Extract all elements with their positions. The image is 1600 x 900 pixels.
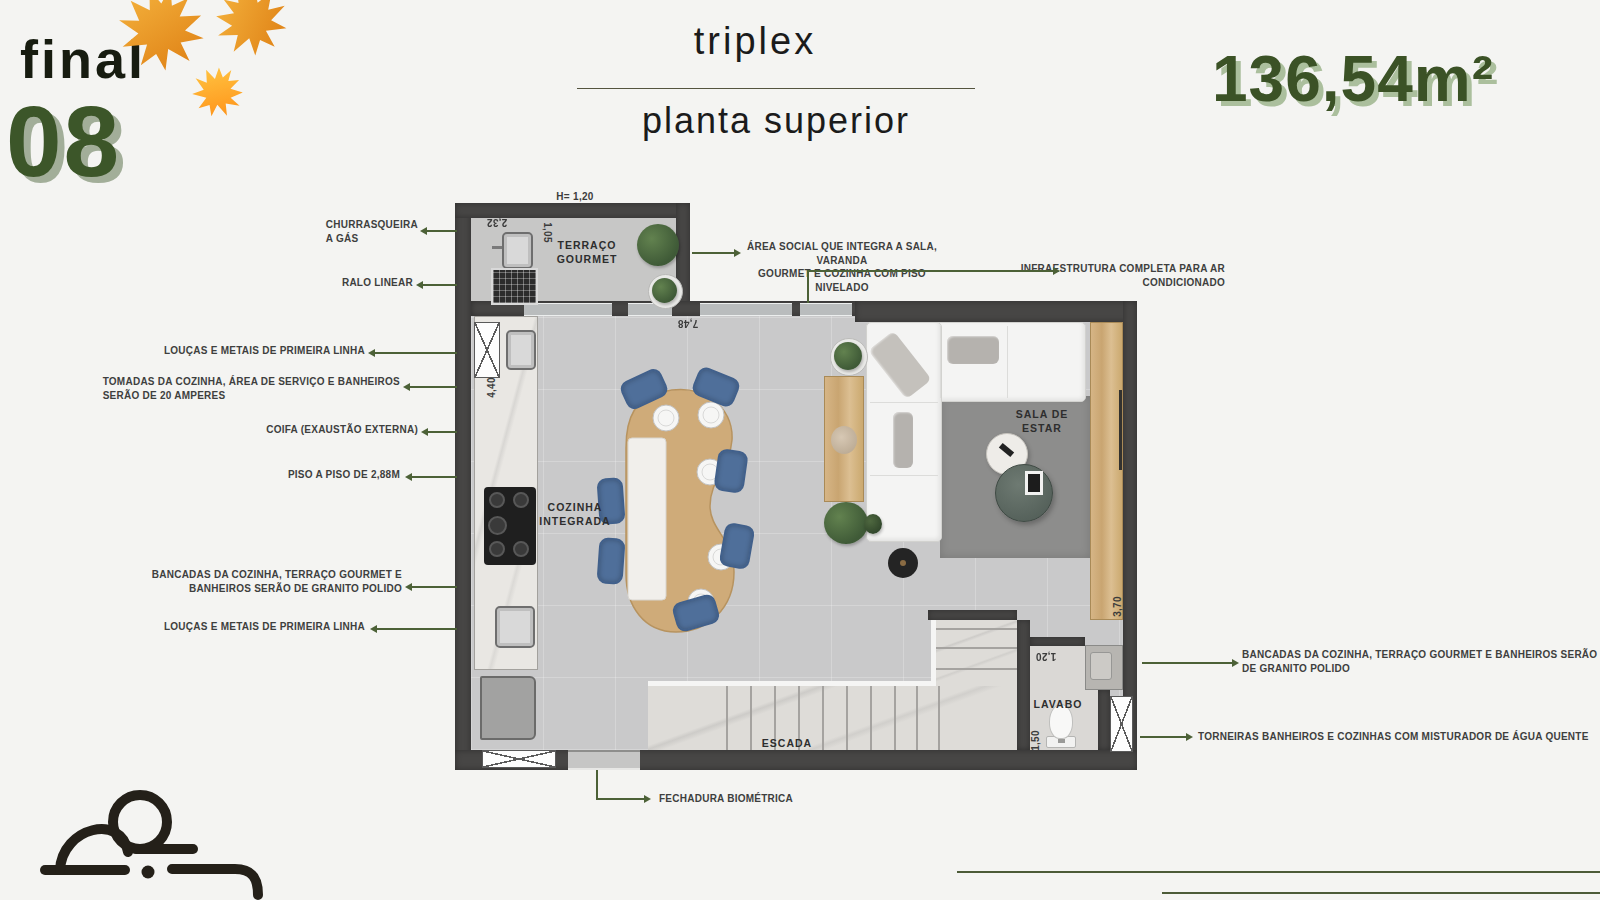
- dim-living-width: 7,48: [668, 318, 708, 329]
- annotation-line: [423, 284, 457, 286]
- room-label-bathroom: LAVABO: [1008, 697, 1108, 711]
- sofa-pillow: [947, 336, 999, 364]
- annotation-bancadas-right: BANCADAS DA COZINHA, TERRAÇO GOURMET E B…: [1242, 648, 1597, 675]
- sliding-door: [800, 303, 852, 316]
- annotation-line: [377, 628, 457, 630]
- arrow-icon: [644, 795, 651, 803]
- lavabo-sink: [1090, 652, 1112, 680]
- arrow-icon: [734, 249, 741, 257]
- annotation-loucas-1: LOUÇAS E METAIS DE PRIMEIRA LINHA: [164, 344, 365, 358]
- stair-tread: [936, 668, 1017, 670]
- page-subtitle: planta superior: [577, 100, 975, 142]
- wall-left: [455, 203, 471, 770]
- annotation-coifa: COIFA (EXAUSTÃO EXTERNA): [266, 423, 418, 437]
- annotation-piso-a-piso: PISO A PISO DE 2,88M: [288, 468, 400, 482]
- wood-panel: [1090, 322, 1123, 620]
- terrace-plant: [637, 224, 679, 266]
- annotation-line: [1140, 736, 1186, 738]
- dried-plant: [831, 426, 857, 454]
- sofa-pillow: [893, 412, 913, 468]
- dim-ceiling-height: H= 1,20: [545, 191, 605, 202]
- potted-plant-leaves: [834, 342, 862, 370]
- floorplan-poster: final 08 triplex planta superior 136,54m…: [0, 0, 1600, 900]
- annotation-line: [412, 586, 457, 588]
- arrow-icon: [1186, 733, 1193, 741]
- dining-chair: [596, 537, 625, 585]
- cooktop-burner: [488, 516, 507, 535]
- annotation-line: [375, 352, 457, 354]
- dim-bathroom-width: 1,20: [1026, 651, 1066, 662]
- annotation-fechadura: FECHADURA BIOMÉTRICA: [659, 792, 793, 806]
- title-divider: [577, 88, 975, 89]
- dim-panel-length: 3,70: [1112, 587, 1123, 627]
- unit-number: 08: [6, 84, 121, 199]
- sofa-seam: [940, 326, 941, 398]
- dim-bathroom-depth: 1,50: [1030, 721, 1041, 761]
- annotation-tomadas: TOMADAS DA COZINHA, ÁREA DE SERVIÇO E BA…: [103, 375, 400, 402]
- stair-tread: [726, 686, 728, 750]
- wall-lavabo-top: [1030, 637, 1085, 646]
- dim-kitchen-length: 4,40: [486, 368, 497, 408]
- stair-tread: [936, 647, 1017, 649]
- dim-terrace-depth: 2,32: [477, 217, 517, 228]
- arrow-icon: [421, 428, 428, 436]
- annotation-area-social: ÁREA SOCIAL QUE INTEGRA A SALA, VARANDA …: [742, 240, 942, 294]
- panel-handle: [1119, 390, 1122, 470]
- wall-stairs-lavabo: [1017, 620, 1030, 750]
- stair-tread: [936, 628, 1017, 630]
- stair-tread: [870, 686, 872, 750]
- annotation-ralo-linear: RALO LINEAR: [342, 276, 413, 290]
- cooktop-burner: [489, 492, 505, 508]
- page-title: triplex: [600, 20, 910, 63]
- annotation-line: [596, 770, 598, 800]
- stair-tread: [916, 686, 918, 750]
- area-value: 136,54m²: [1212, 42, 1494, 116]
- arrow-icon: [420, 227, 427, 235]
- wall-stairs-upper-top: [928, 610, 1017, 620]
- annotation-infraestrutura: INFRAESTRUTURA COMPLETA PARA AR CONDICIO…: [1021, 262, 1225, 289]
- arrow-icon: [403, 383, 410, 391]
- annotation-line: [427, 230, 457, 232]
- kitchen-sink-top: [506, 330, 536, 370]
- terrace-faucet: [492, 246, 502, 249]
- stair-tread: [894, 686, 896, 750]
- small-plant: [864, 514, 882, 534]
- stair-tread: [846, 686, 848, 750]
- sofa-seam: [1007, 326, 1008, 398]
- arrow-icon: [1232, 659, 1239, 667]
- room-label-kitchen: COZINHA INTEGRADA: [515, 500, 635, 528]
- coffee-table-stone: [995, 464, 1053, 522]
- arrow-icon: [416, 281, 423, 289]
- annotation-line: [692, 252, 734, 254]
- brand-logo: [30, 755, 275, 900]
- arrow-icon: [1053, 267, 1060, 275]
- dim-terrace-side: 1,05: [542, 213, 553, 253]
- stairs-edge: [931, 620, 936, 686]
- wall-terrace-top: [455, 203, 690, 218]
- entry-door-opening: [568, 750, 640, 770]
- dining-chair: [713, 448, 749, 494]
- annotation-line: [596, 798, 644, 800]
- terrace-potted-plant-leaves: [652, 278, 677, 303]
- wall-sofa-back: [855, 301, 1137, 322]
- footer-rule: [957, 871, 1600, 873]
- floor-plant: [824, 502, 868, 544]
- sofa-seam: [870, 475, 938, 476]
- annotation-line: [412, 476, 457, 478]
- toilet-button: [1058, 739, 1065, 743]
- refrigerator: [480, 676, 536, 740]
- arrow-icon: [370, 625, 377, 633]
- sofa-seam: [870, 402, 938, 403]
- annotation-line: [807, 270, 1053, 272]
- stairs-upper-flight: [936, 620, 1017, 686]
- annotation-line: [1142, 662, 1232, 664]
- annotation-torneiras: TORNEIRAS BANHEIROS E COZINHAS COM MISTU…: [1198, 730, 1589, 744]
- terrace-sink: [502, 232, 533, 269]
- stairs-edge: [648, 681, 935, 686]
- gas-grill: [491, 268, 538, 305]
- coffee-table-book: [1028, 474, 1040, 492]
- annotation-bancadas-left: BANCADAS DA COZINHA, TERRAÇO GOURMET E B…: [152, 568, 402, 595]
- cooktop-burner: [513, 541, 529, 557]
- shaft-bottom-left: [482, 750, 556, 768]
- annotation-loucas-2: LOUÇAS E METAIS DE PRIMEIRA LINHA: [164, 620, 365, 634]
- cooktop-burner: [489, 541, 505, 557]
- room-label-stairs: ESCADA: [737, 736, 837, 750]
- footer-rule: [1162, 892, 1600, 894]
- annotation-line: [410, 386, 457, 388]
- annotation-line: [807, 272, 809, 303]
- annotation-churrasqueira: CHURRASQUEIRA A GÁS: [326, 218, 418, 245]
- floor-lamp-dot: [900, 560, 906, 566]
- arrow-icon: [405, 473, 412, 481]
- room-label-living: SALA DE ESTAR: [992, 407, 1092, 435]
- arrow-icon: [405, 583, 412, 591]
- shaft-bottom-right: [1110, 696, 1133, 752]
- stair-tread: [938, 686, 940, 750]
- arrow-icon: [368, 349, 375, 357]
- kitchen-sink-bottom: [495, 606, 535, 648]
- annotation-line: [428, 431, 457, 433]
- sliding-door: [700, 303, 792, 316]
